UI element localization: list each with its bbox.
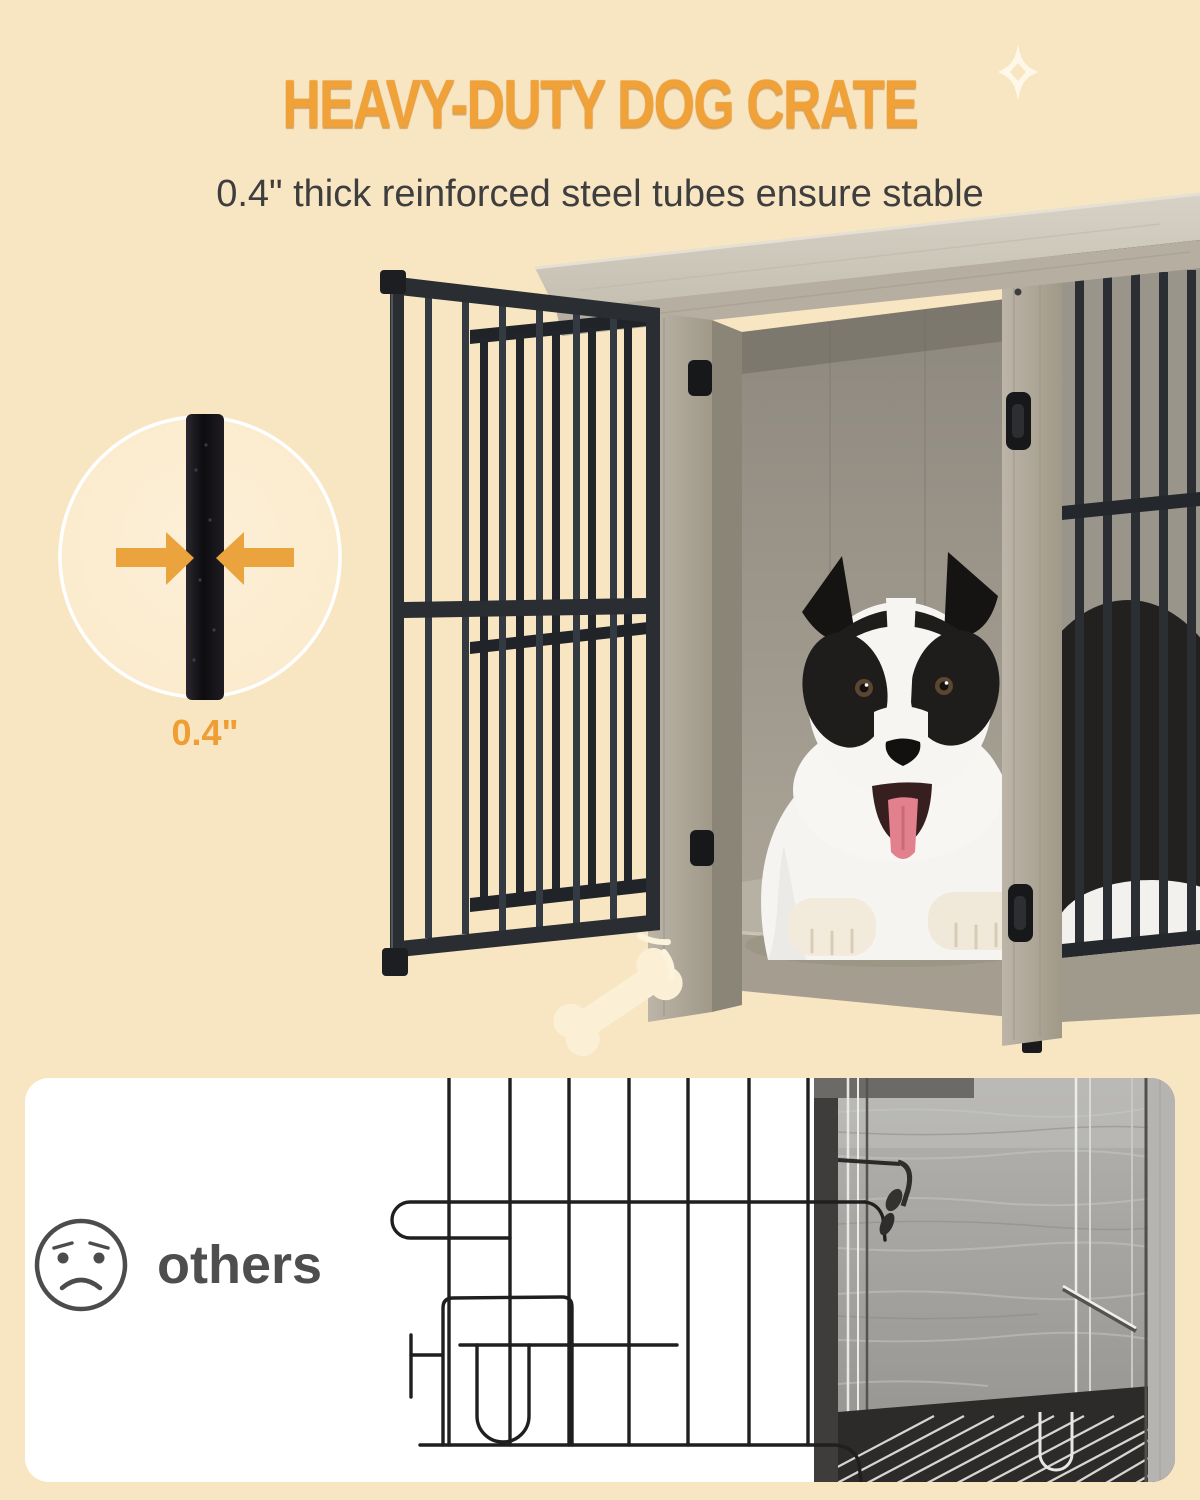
tube-thickness-label: 0.4" <box>125 712 285 754</box>
crate-illustration <box>380 194 1200 1063</box>
others-label: others <box>157 1234 322 1296</box>
crate-left-post <box>648 312 742 1022</box>
bone-watermark-icon <box>547 936 689 1063</box>
tube-thickness-badge <box>60 414 340 700</box>
page-canvas: HEAVY-DUTY DOG CRATE 0.4" thick reinforc… <box>0 0 1200 1500</box>
sad-face-icon <box>26 1210 136 1320</box>
crate-right-post <box>1002 246 1062 1046</box>
dog-head <box>793 552 1008 862</box>
sparkle-icon <box>998 44 1038 101</box>
comparison-panel: others <box>25 1078 1175 1482</box>
